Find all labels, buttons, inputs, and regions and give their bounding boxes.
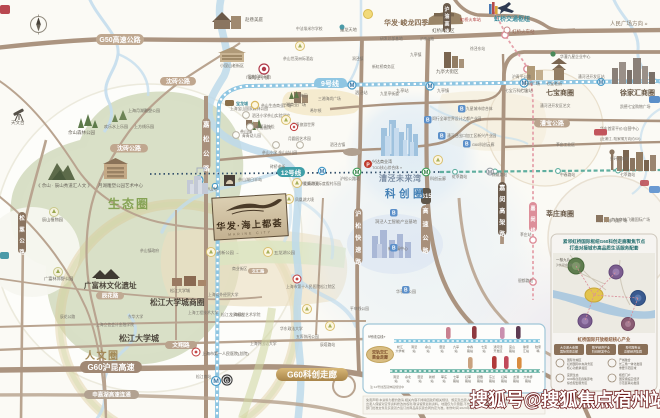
svg-text:三湘海尚广场: 三湘海尚广场 bbox=[318, 96, 341, 101]
svg-text:蒸: 蒸 bbox=[18, 225, 25, 233]
svg-text:月圆园艺术园: 月圆园艺术园 bbox=[288, 136, 311, 141]
svg-text:泗泾古镇: 泗泾古镇 bbox=[330, 142, 345, 147]
svg-text:青青幼儿园: 青青幼儿园 bbox=[242, 133, 261, 138]
svg-text:一核九片: 一核九片 bbox=[556, 257, 571, 262]
svg-text:漕河泾开发区艺文: 漕河泾开发区艺文 bbox=[540, 103, 571, 108]
svg-text:松江大学城商圈: 松江大学城商圈 bbox=[150, 297, 205, 307]
svg-text:凤凰湖大境: 凤凰湖大境 bbox=[295, 197, 314, 202]
svg-text:梅园: 梅园 bbox=[300, 93, 308, 98]
svg-text:M: M bbox=[424, 170, 429, 176]
svg-text:万科广场: 万科广场 bbox=[524, 80, 540, 86]
svg-text:生态圈: 生态圈 bbox=[108, 196, 150, 211]
svg-text:B: B bbox=[440, 134, 444, 140]
svg-text:徐家汇商圈: 徐家汇商圈 bbox=[619, 88, 655, 97]
svg-text:路站: 路站 bbox=[509, 348, 515, 353]
svg-text:月湖雕塑公园艺术中心: 月湖雕塑公园艺术中心 bbox=[98, 182, 143, 189]
svg-text:B: B bbox=[426, 118, 430, 124]
svg-text:站: 站 bbox=[426, 348, 429, 353]
svg-text:速: 速 bbox=[355, 246, 361, 254]
svg-text:M: M bbox=[350, 83, 355, 89]
svg-text:松: 松 bbox=[355, 222, 361, 230]
svg-text:G60沪昆高速: G60沪昆高速 bbox=[87, 362, 134, 372]
svg-text:佘山生态商业广场: 佘山生态商业广场 bbox=[261, 103, 292, 108]
svg-text:黄金走廊: 黄金走廊 bbox=[371, 354, 388, 360]
svg-text:路站: 路站 bbox=[501, 378, 507, 383]
svg-text:辰花路: 辰花路 bbox=[102, 292, 119, 300]
svg-text:莘庄站: 莘庄站 bbox=[520, 232, 532, 237]
svg-text:七宝商圈: 七宝商圈 bbox=[546, 88, 574, 97]
svg-text:七莘路站: 七莘路站 bbox=[620, 172, 635, 177]
svg-text:B: B bbox=[465, 142, 469, 148]
svg-text:»: » bbox=[542, 370, 544, 374]
svg-text:12号线: 12号线 bbox=[281, 168, 302, 177]
svg-text:速: 速 bbox=[444, 28, 449, 35]
svg-text:闵: 闵 bbox=[530, 216, 535, 223]
svg-text:七宝老街: 七宝老街 bbox=[546, 80, 562, 86]
svg-text:上海立信会计金融学院: 上海立信会计金融学院 bbox=[96, 322, 134, 327]
svg-text:嘉: 嘉 bbox=[202, 119, 210, 128]
svg-text:辰塔路站: 辰塔路站 bbox=[320, 342, 335, 347]
svg-text:沪: 沪 bbox=[355, 210, 361, 218]
svg-text:示范区联动发展: 示范区联动发展 bbox=[619, 380, 639, 385]
svg-text:赵巷美庭: 赵巷美庭 bbox=[245, 16, 263, 23]
svg-text:架: 架 bbox=[498, 219, 505, 227]
svg-text:砖桥老街: 砖桥老街 bbox=[270, 164, 285, 169]
svg-text:小昆山老街区: 小昆山老街区 bbox=[220, 62, 244, 68]
svg-text:站: 站 bbox=[430, 378, 433, 383]
svg-text:凯德七宝购物广场: 凯德七宝购物广场 bbox=[620, 104, 651, 109]
svg-text:漕泾未来湾: 漕泾未来湾 bbox=[379, 173, 422, 183]
svg-text:站: 站 bbox=[418, 378, 421, 383]
svg-text:广富林郊野公园: 广富林郊野公园 bbox=[44, 275, 73, 282]
svg-text:佘山医院: 佘山医院 bbox=[256, 125, 271, 130]
svg-text:路站: 路站 bbox=[489, 378, 495, 383]
svg-text:9号线沿线»: 9号线沿线» bbox=[368, 334, 385, 339]
svg-text:东华大学: 东华大学 bbox=[128, 314, 143, 319]
svg-text:综合配套服务区: 综合配套服务区 bbox=[567, 380, 587, 385]
svg-text:华漕九星企业中心: 华漕九星企业中心 bbox=[560, 54, 591, 59]
svg-text:松江南站: 松江南站 bbox=[196, 374, 211, 379]
svg-text:部门批准文件及买卖双方签订的商品房买卖合同约定为准。制作时间: 部门批准文件及买卖双方签订的商品房买卖合同约定为准。制作时间:2023年8月。 bbox=[366, 405, 478, 410]
svg-text:TOD核心综合体 »: TOD核心综合体 » bbox=[372, 165, 402, 170]
svg-text:上海市第十人民医院松江院区: 上海市第十人民医院松江院区 bbox=[286, 284, 336, 289]
svg-text:汇站: 汇站 bbox=[523, 348, 529, 353]
svg-text:打造对接城市高品质生活服务配套: 打造对接城市高品质生活服务配套 bbox=[570, 245, 639, 252]
svg-text:沪杭双城创新带示意: 沪杭双城创新带示意 bbox=[556, 263, 581, 267]
svg-text:G60科创云廊: G60科创云廊 bbox=[472, 142, 495, 147]
svg-text:科创研发中心: 科创研发中心 bbox=[592, 349, 610, 354]
svg-text:M: M bbox=[599, 80, 603, 86]
svg-text:漕宝公路: 漕宝公路 bbox=[539, 119, 565, 127]
svg-text:嘉: 嘉 bbox=[529, 205, 535, 212]
svg-text:路: 路 bbox=[499, 230, 506, 238]
svg-text:沪松公路站: 沪松公路站 bbox=[340, 175, 360, 181]
svg-text:9号线: 9号线 bbox=[321, 79, 339, 88]
svg-text:(近浦江, 陆家嘴方向约XX): (近浦江, 陆家嘴方向约XX) bbox=[600, 136, 640, 141]
svg-text:中法埃米尔学校: 中法埃米尔学校 bbox=[296, 26, 323, 31]
svg-text:研发总部基地: 研发总部基地 bbox=[380, 36, 403, 41]
svg-text:公: 公 bbox=[203, 150, 210, 158]
svg-text:搜狐号@搜狐焦点宿州站: 搜狐号@搜狐焦点宿州站 bbox=[470, 389, 660, 410]
svg-text:公: 公 bbox=[422, 235, 428, 242]
svg-text:松江大学城: 松江大学城 bbox=[170, 287, 190, 293]
svg-text:嘴: 嘴 bbox=[536, 348, 539, 353]
svg-text:速: 速 bbox=[422, 220, 428, 228]
svg-text:兴达商业湾: 兴达商业湾 bbox=[372, 158, 392, 164]
svg-text:沪亭北路: 沪亭北路 bbox=[420, 36, 434, 41]
svg-text:G60科创走廊: G60科创走廊 bbox=[287, 370, 338, 380]
svg-text:九亭镇: 九亭镇 bbox=[437, 87, 449, 93]
svg-text:虹莘路站: 虹莘路站 bbox=[452, 174, 467, 179]
svg-text:站: 站 bbox=[440, 348, 443, 353]
svg-text:上海月湖雕塑公园: 上海月湖雕塑公园 bbox=[128, 107, 160, 113]
svg-text:高: 高 bbox=[499, 207, 505, 215]
svg-text:佘山世茂洲际酒店: 佘山世茂洲际酒店 bbox=[283, 56, 314, 61]
svg-text:佘山森林公园: 佘山森林公园 bbox=[68, 129, 95, 136]
svg-text:华发·峻龙四季: 华发·峻龙四季 bbox=[384, 18, 429, 27]
svg-text:平申线公园: 平申线公园 bbox=[350, 306, 369, 311]
svg-text:大学城: 大学城 bbox=[395, 348, 404, 353]
svg-text:B: B bbox=[404, 288, 408, 294]
svg-text:银都路站: 银都路站 bbox=[518, 278, 533, 283]
svg-text:佘山镇政府: 佘山镇政府 bbox=[140, 248, 159, 253]
svg-text:G50高速公路: G50高速公路 bbox=[99, 35, 141, 44]
svg-text:虹桥火车站: 虹桥火车站 bbox=[460, 16, 481, 23]
svg-text:站: 站 bbox=[442, 378, 445, 383]
svg-text:站: 站 bbox=[482, 348, 485, 353]
svg-text:沪青平公路: 沪青平公路 bbox=[512, 74, 531, 79]
svg-text:希尔顿: 希尔顿 bbox=[310, 108, 322, 113]
svg-text:(恒基旭辉天地): (恒基旭辉天地) bbox=[246, 74, 272, 79]
svg-text:站: 站 bbox=[394, 378, 397, 383]
svg-text:莘庄商圈: 莘庄商圈 bbox=[546, 209, 574, 218]
svg-text:泗泾站: 泗泾站 bbox=[355, 89, 368, 96]
svg-text:上海工程技术大学: 上海工程技术大学 bbox=[188, 310, 219, 315]
svg-text:外环线方向: 外环线方向 bbox=[610, 156, 629, 161]
svg-text:九星城市综合体: 九星城市综合体 bbox=[466, 106, 493, 111]
svg-text:文汇路: 文汇路 bbox=[252, 268, 265, 275]
svg-text:洞泾镇: 洞泾镇 bbox=[352, 56, 364, 61]
svg-text:沈砖公路: 沈砖公路 bbox=[117, 144, 142, 152]
svg-text:B: B bbox=[460, 107, 464, 113]
svg-text:路站: 路站 bbox=[477, 378, 483, 383]
svg-text:新虹桥商务区: 新虹桥商务区 bbox=[372, 64, 395, 69]
svg-text:科创云廊: 科创云廊 bbox=[430, 175, 446, 181]
svg-text:商业街区: 商业街区 bbox=[232, 266, 247, 271]
svg-text:文翔路: 文翔路 bbox=[172, 341, 190, 349]
svg-text:九亭镇: 九亭镇 bbox=[410, 52, 422, 57]
svg-text:松江大学城: 松江大学城 bbox=[119, 333, 159, 343]
svg-text:顾戴路站: 顾戴路站 bbox=[492, 172, 507, 177]
svg-text:闵: 闵 bbox=[499, 196, 505, 204]
svg-text:五龙湖公园: 五龙湖公园 bbox=[274, 249, 295, 256]
svg-text:欢乐水上乐园: 欢乐水上乐园 bbox=[104, 123, 128, 129]
svg-text:华东政法大学: 华东政法大学 bbox=[280, 326, 303, 331]
svg-text:G: G bbox=[225, 379, 229, 385]
svg-text:沪: 沪 bbox=[444, 6, 449, 13]
svg-text:科创圈: 科创圈 bbox=[385, 187, 427, 200]
svg-text:M: M bbox=[428, 84, 433, 90]
svg-text:漕河泾出口加工区新兴产业园: 漕河泾出口加工区新兴产业园 bbox=[447, 133, 497, 138]
svg-text:上海市第一人民医院(总院): 上海市第一人民医院(总院) bbox=[202, 350, 249, 356]
svg-text:漕河泾开发区站: 漕河泾开发区站 bbox=[578, 74, 605, 79]
svg-text:路: 路 bbox=[355, 258, 362, 266]
svg-text:路站: 路站 bbox=[525, 378, 531, 383]
svg-text:《 佘山 · 辰山秀道汇人文 》: 《 佘山 · 辰山秀道汇人文 》 bbox=[36, 182, 92, 189]
svg-text:松江大学城站: 松江大学城站 bbox=[221, 312, 244, 317]
svg-text:国际贸易总部: 国际贸易总部 bbox=[560, 349, 578, 354]
svg-text:人民广场方向 »: 人民广场方向 » bbox=[610, 20, 648, 28]
svg-text:快: 快 bbox=[354, 234, 362, 242]
svg-text:宝龙城: 宝龙城 bbox=[236, 100, 248, 106]
svg-text:闵行全球世界设计之都产业园: 闵行全球世界设计之都产业园 bbox=[432, 116, 482, 121]
svg-text:创新公园 →: 创新公园 → bbox=[217, 249, 239, 256]
svg-text:重要示范区域: 重要示范区域 bbox=[619, 365, 636, 370]
svg-text:中春路站: 中春路站 bbox=[560, 172, 575, 177]
svg-text:洞泾人工智能产业基地: 洞泾人工智能产业基地 bbox=[375, 218, 418, 225]
svg-text:虹桥火车站: 虹桥火车站 bbox=[512, 28, 535, 35]
svg-text:沈砖公路: 沈砖公路 bbox=[166, 77, 191, 85]
svg-text:路: 路 bbox=[19, 248, 25, 256]
svg-text:九亭大街区: 九亭大街区 bbox=[436, 68, 459, 75]
svg-text:站: 站 bbox=[406, 378, 409, 383]
svg-text:松: 松 bbox=[19, 214, 25, 222]
svg-text:九亭站: 九亭站 bbox=[396, 87, 409, 94]
svg-text:紧邻虹桥国际枢纽G60科创走廊聚焦节点: 紧邻虹桥国际枢纽G60科创走廊聚焦节点 bbox=[563, 238, 646, 245]
svg-text:佘山湖日半岛: 佘山湖日半岛 bbox=[238, 176, 262, 182]
svg-text:申嘉湖高速连通: 申嘉湖高速连通 bbox=[92, 390, 131, 398]
svg-text:虹桥交通枢纽: 虹桥交通枢纽 bbox=[494, 15, 530, 23]
svg-text:佘山小学 佘山幼儿园: 佘山小学 佘山幼儿园 bbox=[262, 150, 297, 155]
svg-text:总部经济集群: 总部经济集群 bbox=[624, 349, 642, 354]
svg-text:七宝万科广场: 七宝万科广场 bbox=[505, 88, 528, 93]
svg-text:蒙美湖国际度假村乐园: 蒙美湖国际度假村乐园 bbox=[303, 181, 341, 186]
svg-text:辰花公路: 辰花公路 bbox=[60, 314, 75, 319]
svg-text:广富林文化遗址: 广富林文化遗址 bbox=[84, 280, 137, 290]
svg-text:M: M bbox=[320, 169, 325, 175]
svg-text:上方线乐园: 上方线乐园 bbox=[134, 123, 154, 129]
svg-text:高: 高 bbox=[422, 207, 428, 215]
svg-text:辰山植物园: 辰山植物园 bbox=[42, 216, 63, 223]
svg-text:莘庄工业区: 莘庄工业区 bbox=[556, 142, 575, 147]
svg-text:路站: 路站 bbox=[453, 378, 459, 383]
svg-text:B: B bbox=[392, 211, 396, 217]
svg-text:路: 路 bbox=[422, 247, 429, 255]
svg-text:B: B bbox=[392, 246, 396, 252]
svg-text:站: 站 bbox=[412, 348, 415, 353]
svg-text:路站: 路站 bbox=[467, 348, 473, 353]
svg-text:嘉: 嘉 bbox=[498, 184, 505, 192]
svg-text:人文圈: 人文圈 bbox=[85, 349, 120, 362]
svg-text:松: 松 bbox=[203, 134, 210, 143]
svg-text:虹桥国际开放枢纽核心产业: 虹桥国际开放枢纽核心产业 bbox=[578, 336, 631, 343]
svg-text:南方商城/飞雕国际广场: 南方商城/飞雕国际广场 bbox=[611, 217, 650, 222]
svg-text:公: 公 bbox=[19, 238, 25, 245]
svg-text:站: 站 bbox=[454, 348, 457, 353]
svg-text:路站: 路站 bbox=[513, 378, 519, 383]
svg-text:上海对外经贸大学: 上海对外经贸大学 bbox=[208, 292, 239, 297]
svg-text:路站: 路站 bbox=[465, 378, 471, 383]
svg-text:高: 高 bbox=[444, 20, 449, 27]
svg-text:核心功能承载区: 核心功能承载区 bbox=[567, 365, 587, 370]
svg-text:注:12号线西延伸段规划中: 注:12号线西延伸段规划中 bbox=[370, 384, 404, 389]
svg-text:开发区: 开发区 bbox=[493, 348, 502, 353]
svg-text:五厍休闲公园: 五厍休闲公园 bbox=[296, 334, 319, 339]
svg-text:徐泾东站: 徐泾东站 bbox=[470, 46, 485, 51]
svg-text:M: M bbox=[213, 378, 219, 385]
svg-text:天文台: 天文台 bbox=[11, 119, 25, 126]
